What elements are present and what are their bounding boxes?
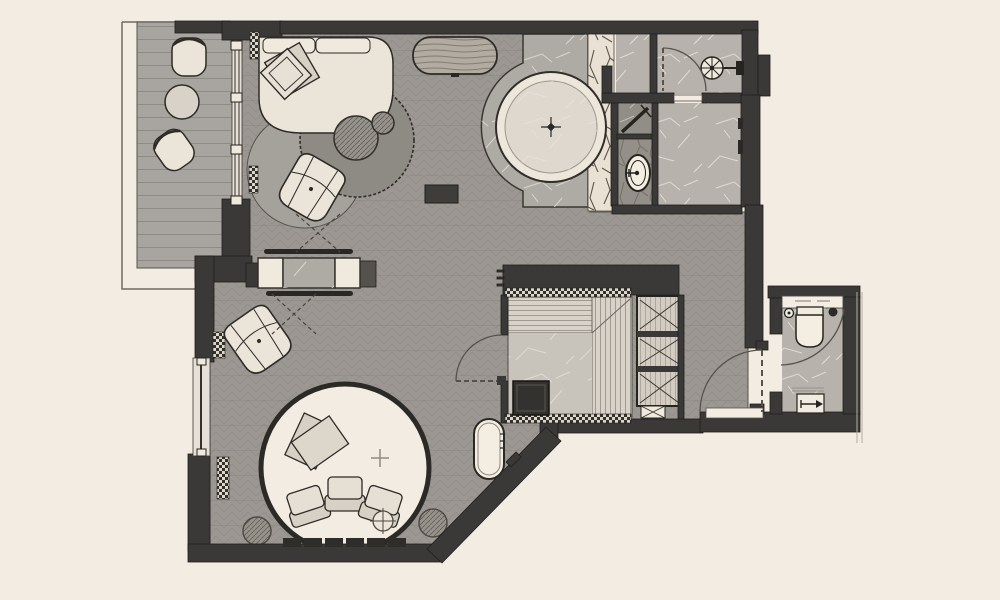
soaking-tub xyxy=(496,72,606,182)
planter-left xyxy=(243,517,271,545)
conversation-pit xyxy=(261,384,429,552)
pit-cushion-center xyxy=(325,477,365,511)
wall-wc-left-upper xyxy=(770,298,782,334)
towel-bar-1 xyxy=(738,118,743,129)
wc-shelf xyxy=(782,296,843,308)
floor-vent xyxy=(425,185,458,203)
sauna-front-upper xyxy=(501,295,508,335)
tv-panel-bottom xyxy=(266,291,353,296)
wall-stall-left xyxy=(611,103,618,206)
coffee-table xyxy=(413,37,497,74)
wardrobe xyxy=(637,296,683,418)
plunge-tub xyxy=(474,419,504,479)
wall-left-lower xyxy=(188,454,210,551)
balcony-table xyxy=(165,85,199,119)
wall-bathroom-right xyxy=(741,95,760,207)
door-hinge-sauna xyxy=(497,376,506,385)
wall-wc-left-lower xyxy=(770,392,782,414)
wall-fan-room-left xyxy=(650,34,657,94)
floor-plan-canvas xyxy=(0,0,1000,600)
wall-corridor-right xyxy=(745,205,763,348)
pit-ring xyxy=(261,384,429,552)
wall-right-nub xyxy=(758,55,770,96)
wall-right-upper xyxy=(742,30,758,96)
wall-wardrobe-right xyxy=(678,295,684,420)
balcony-chair-1 xyxy=(172,38,206,76)
wall-bath-divider-left xyxy=(602,93,674,103)
console-cabinet-right xyxy=(335,258,360,288)
wc-toilet-bowl xyxy=(796,315,823,347)
wall-left-mid xyxy=(195,256,214,362)
balcony-window-glass xyxy=(232,41,242,203)
console-cabinet-left xyxy=(258,258,283,288)
coffee-table-leg xyxy=(451,73,459,77)
bath-door-threshold xyxy=(674,95,702,101)
floor-plan xyxy=(0,0,1000,600)
wall-top-main xyxy=(280,21,758,34)
wall-stall-right xyxy=(652,103,658,206)
wall-window-pier xyxy=(222,199,250,262)
wall-bath-divider-right xyxy=(702,93,742,103)
sauna-heater xyxy=(513,381,549,415)
door-threshold xyxy=(706,408,763,418)
towel-bar-2 xyxy=(738,140,743,154)
wc-sensor xyxy=(829,308,838,317)
door-stub-top xyxy=(756,341,768,350)
pouf-small xyxy=(372,112,394,134)
console-right-stub xyxy=(360,261,376,287)
wall-bathroom-bottom xyxy=(612,205,742,214)
toilet-stall xyxy=(626,155,650,191)
wall-stall-divider xyxy=(617,134,655,139)
sofa-cushion-2 xyxy=(316,38,370,53)
